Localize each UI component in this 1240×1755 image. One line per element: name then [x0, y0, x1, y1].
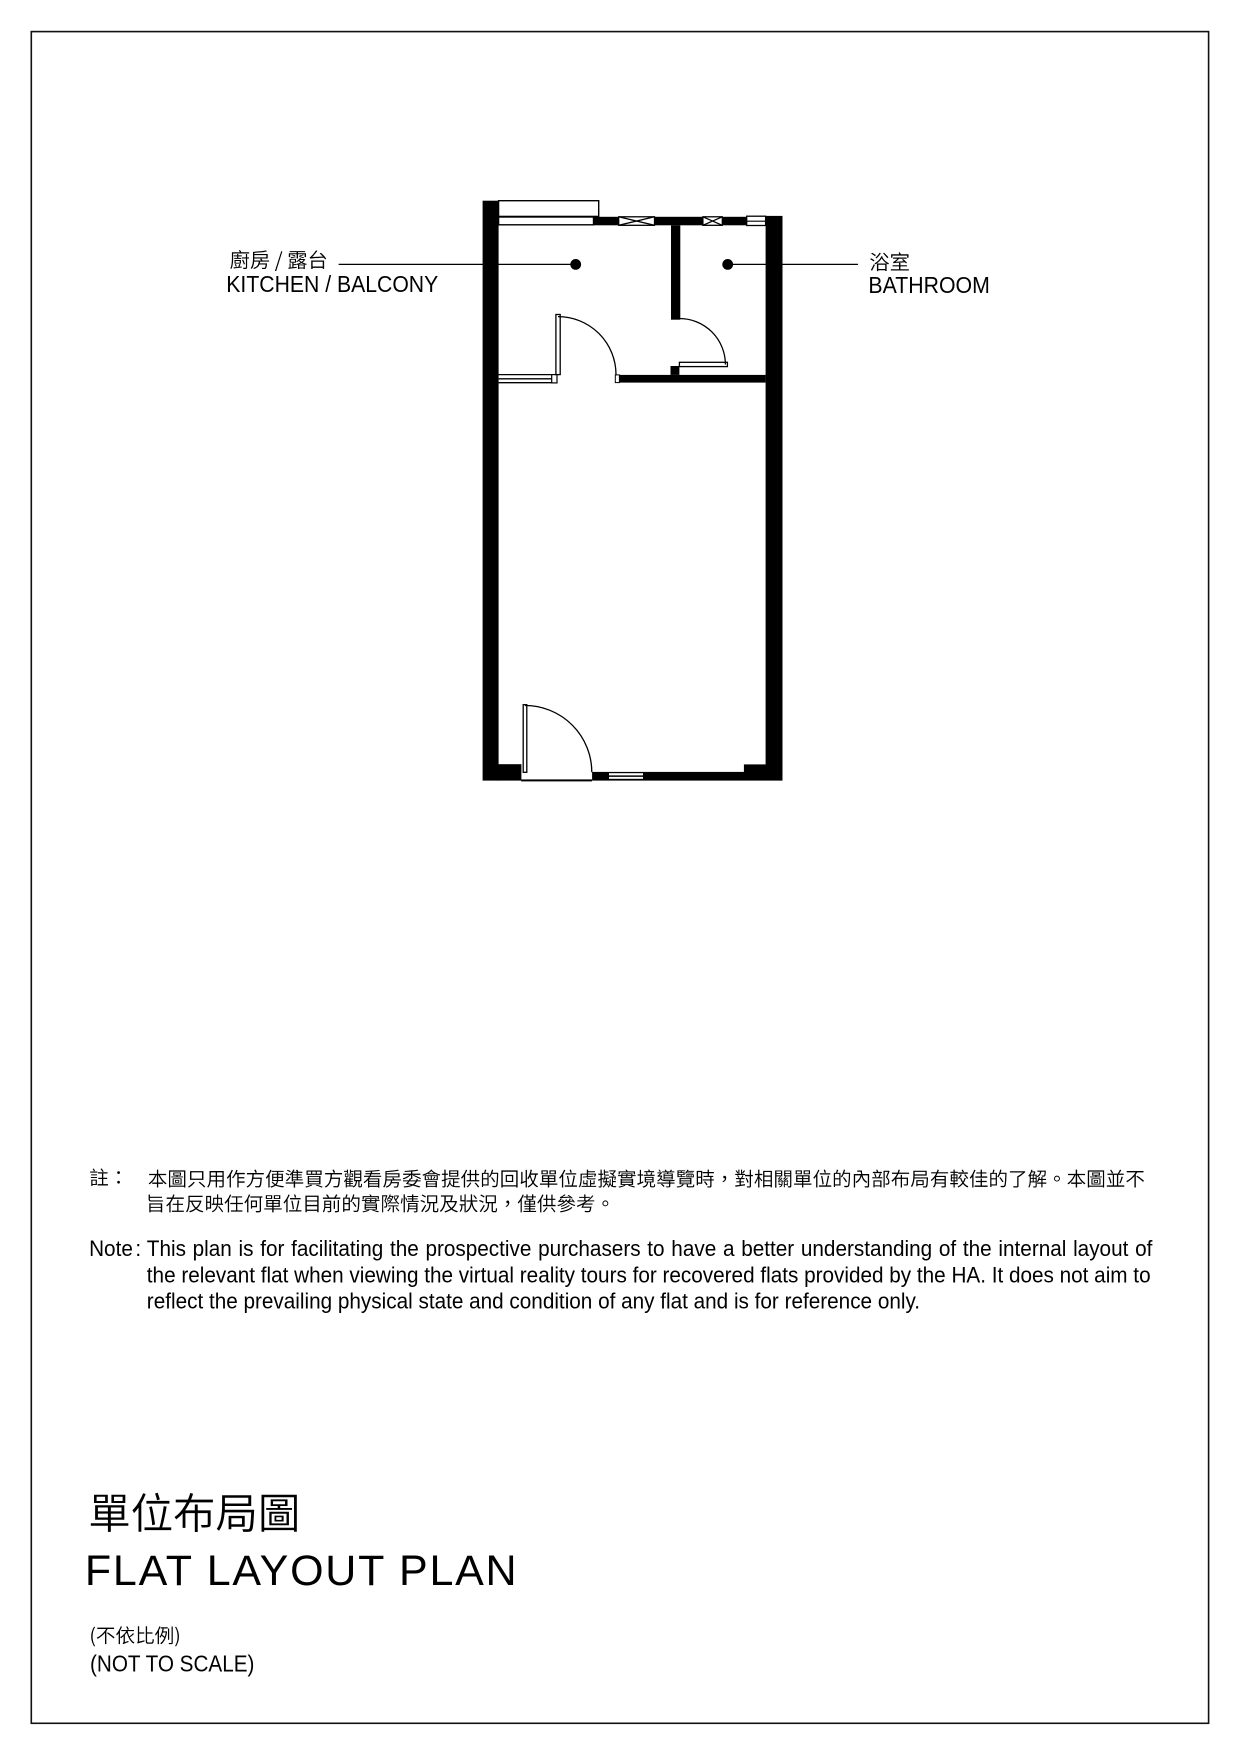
svg-text:reflect the prevailing physica: reflect the prevailing physical state an… [147, 1289, 920, 1314]
svg-text:KITCHEN / BALCONY: KITCHEN / BALCONY [226, 271, 438, 297]
svg-text:This plan is for facilitating: This plan is for facilitating the prospe… [147, 1236, 1153, 1261]
svg-text:BATHROOM: BATHROOM [868, 272, 989, 298]
svg-text:FLAT LAYOUT PLAN: FLAT LAYOUT PLAN [85, 1547, 518, 1595]
svg-text:the relevant flat when viewing: the relevant flat when viewing the virtu… [147, 1263, 1151, 1288]
svg-text:Note :: Note : [89, 1236, 141, 1261]
svg-text:(NOT TO SCALE): (NOT TO SCALE) [90, 1650, 254, 1676]
